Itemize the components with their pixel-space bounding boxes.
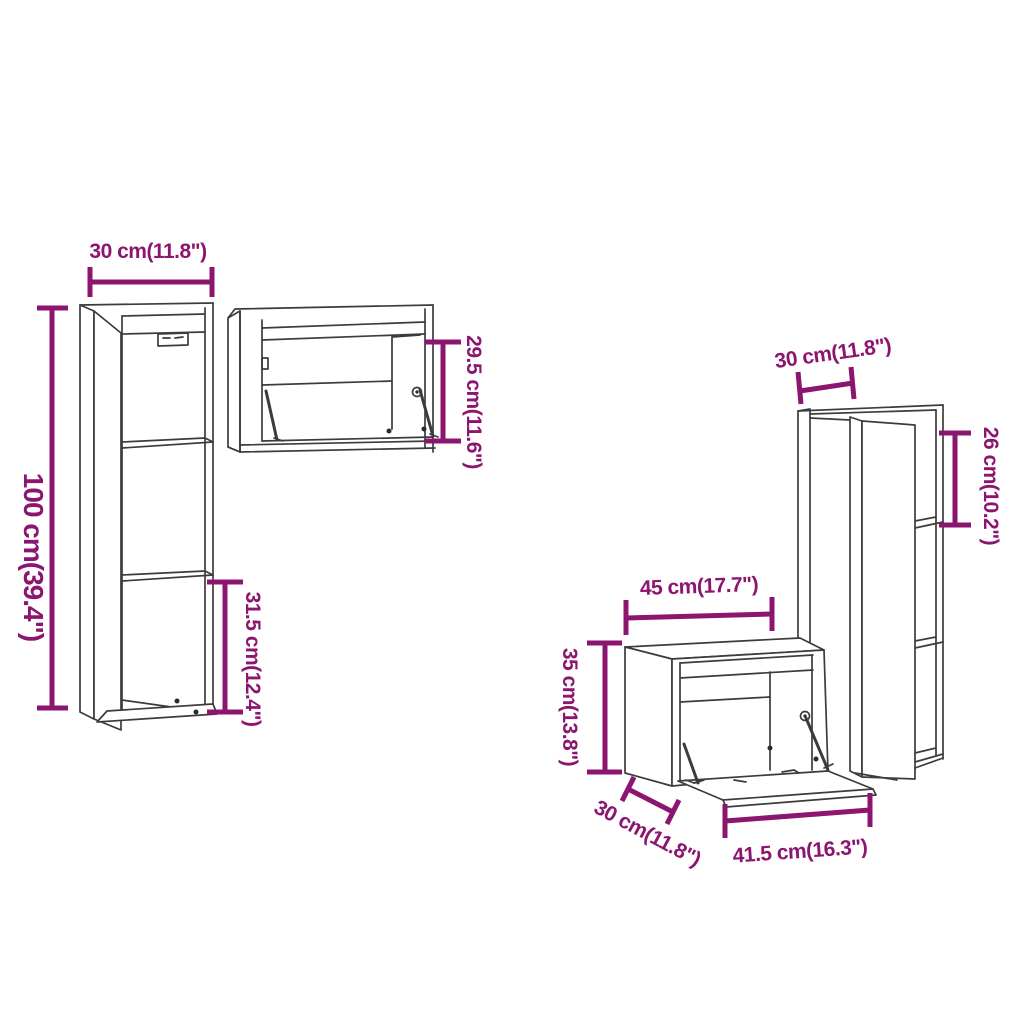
left-cabinet-shelf-lower xyxy=(122,571,213,581)
right-cabinet-open-door xyxy=(862,421,915,779)
top-cabinet-left-face xyxy=(228,311,240,452)
bottom-cabinet-left-face xyxy=(625,647,672,786)
top-cabinet-lid-stay-left xyxy=(266,391,283,441)
dim-line-right-width xyxy=(798,367,854,404)
dim-label-left-compartment: 31.5 cm(12.4") xyxy=(240,592,264,727)
left-cabinet-shelf-upper xyxy=(122,438,213,448)
left-cabinet-open-door-edge xyxy=(80,305,94,719)
product-dimension-diagram: 30 cm(11.8") 100 cm(39.4") 31.5 cm(12.4"… xyxy=(0,0,1024,1024)
dim-label-right-compartment: 26 cm(10.2") xyxy=(978,427,1002,545)
top-cabinet-hinge-plate xyxy=(262,358,268,369)
top-cabinet-top-edge xyxy=(228,305,433,318)
dim-label-mid-height: 29.5 cm(11.6") xyxy=(461,335,485,469)
cabinet-tall-left xyxy=(80,303,217,730)
top-cabinet-flap-fold-line xyxy=(262,381,392,385)
diagram-artwork xyxy=(0,0,1024,1024)
dim-line-bottom-width xyxy=(626,597,772,635)
top-cabinet-open-flap xyxy=(262,437,433,441)
left-cabinet-top-edge xyxy=(80,303,213,305)
dim-label-left-height: 100 cm(39.4") xyxy=(17,473,49,641)
dim-label-left-width: 30 cm(11.8") xyxy=(89,240,206,264)
dim-line-bottom-height xyxy=(587,643,622,772)
dim-line-flap-width xyxy=(725,793,870,838)
right-cabinet-open-door-edge xyxy=(850,417,862,777)
dim-label-bottom-height: 35 cm(13.8") xyxy=(557,648,581,766)
top-cabinet-top-rail xyxy=(262,322,425,328)
left-cabinet-open-door xyxy=(94,311,121,730)
right-cabinet-shelves xyxy=(915,517,943,762)
cabinet-flap-top xyxy=(228,305,438,452)
cabinet-flap-bottom xyxy=(625,638,876,807)
left-cabinet-wall-bracket xyxy=(158,333,188,346)
dim-line-left-width xyxy=(90,267,212,297)
dim-label-bottom-width: 45 cm(17.7") xyxy=(639,573,758,601)
